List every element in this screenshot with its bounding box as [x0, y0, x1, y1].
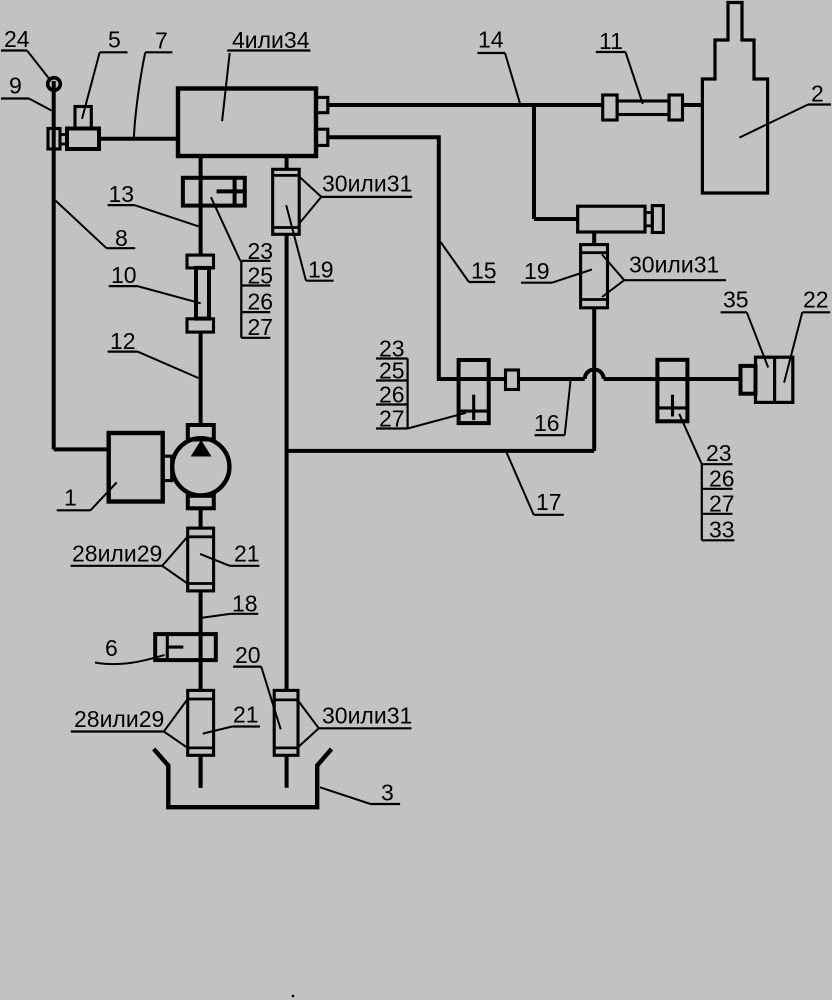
svg-text:3: 3 — [381, 780, 394, 806]
svg-text:17: 17 — [536, 489, 562, 515]
svg-text:18: 18 — [232, 591, 258, 617]
svg-text:23: 23 — [706, 440, 732, 466]
svg-text:11: 11 — [599, 28, 623, 54]
svg-text:4или34: 4или34 — [232, 27, 310, 53]
svg-text:19: 19 — [524, 258, 550, 284]
svg-text:24: 24 — [4, 26, 30, 52]
svg-text:22: 22 — [803, 287, 829, 313]
svg-text:26: 26 — [248, 289, 274, 315]
svg-text:13: 13 — [109, 181, 135, 207]
svg-text:25: 25 — [379, 358, 405, 384]
svg-text:28или29: 28или29 — [74, 706, 164, 732]
svg-text:27: 27 — [709, 491, 735, 517]
svg-text:30или31: 30или31 — [322, 702, 412, 728]
svg-text:21: 21 — [233, 702, 259, 728]
svg-text:35: 35 — [723, 287, 749, 313]
svg-text:12: 12 — [110, 328, 136, 354]
svg-text:21: 21 — [234, 541, 260, 567]
svg-text:10: 10 — [111, 262, 137, 288]
svg-text:2: 2 — [811, 81, 824, 107]
svg-text:33: 33 — [709, 517, 735, 543]
svg-text:28или29: 28или29 — [72, 541, 162, 567]
svg-text:15: 15 — [471, 258, 497, 284]
svg-text:27: 27 — [248, 314, 274, 340]
svg-text:27: 27 — [379, 406, 405, 432]
svg-text:16: 16 — [534, 410, 560, 436]
svg-text:5: 5 — [108, 27, 121, 53]
svg-text:7: 7 — [155, 28, 168, 54]
svg-text:26: 26 — [379, 382, 405, 408]
svg-text:14: 14 — [478, 27, 504, 53]
svg-text:26: 26 — [709, 466, 735, 492]
svg-text:20: 20 — [235, 642, 261, 668]
svg-text:30или31: 30или31 — [322, 171, 412, 197]
svg-text:19: 19 — [308, 257, 334, 283]
svg-text:1: 1 — [64, 485, 77, 511]
svg-text:25: 25 — [248, 263, 274, 289]
svg-text:9: 9 — [9, 73, 22, 99]
svg-text:6: 6 — [105, 635, 118, 661]
svg-text:23: 23 — [248, 238, 274, 264]
svg-text:30или31: 30или31 — [629, 252, 719, 278]
